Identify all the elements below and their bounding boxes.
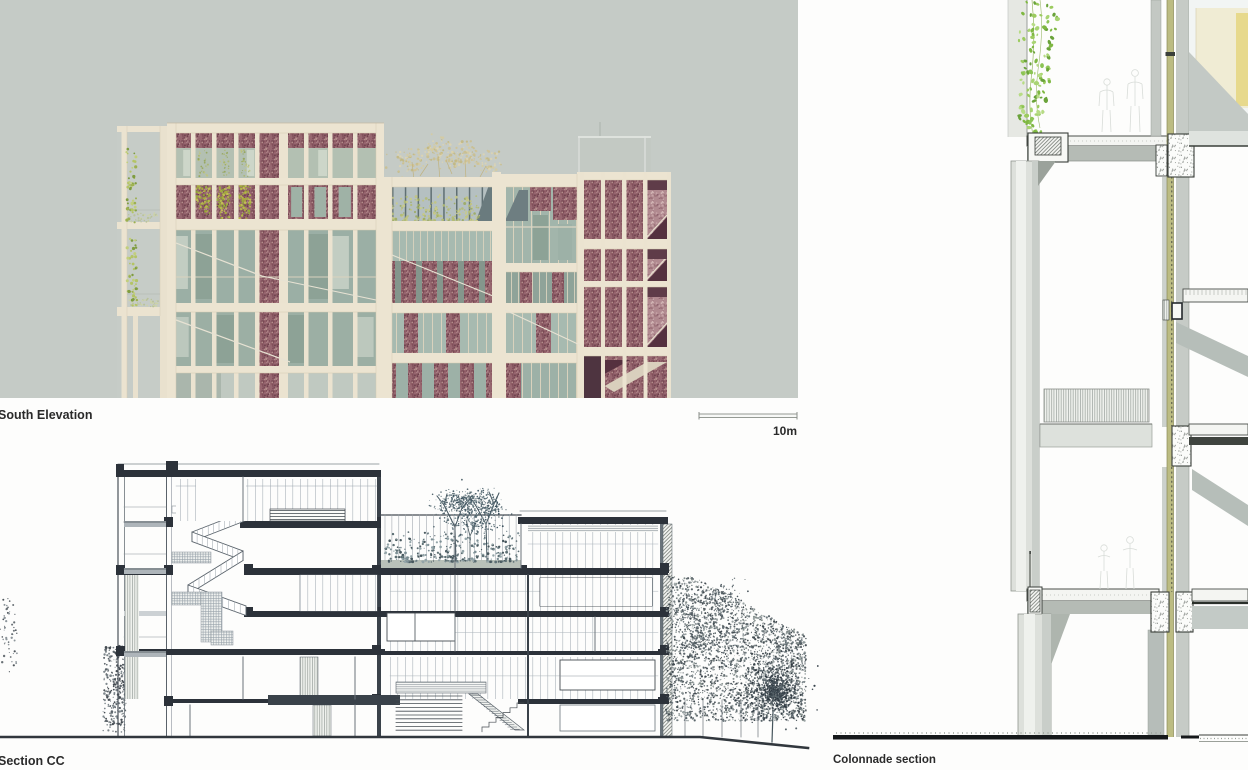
svg-text:10m: 10m bbox=[773, 424, 797, 438]
svg-text:South Elevation: South Elevation bbox=[0, 408, 92, 422]
